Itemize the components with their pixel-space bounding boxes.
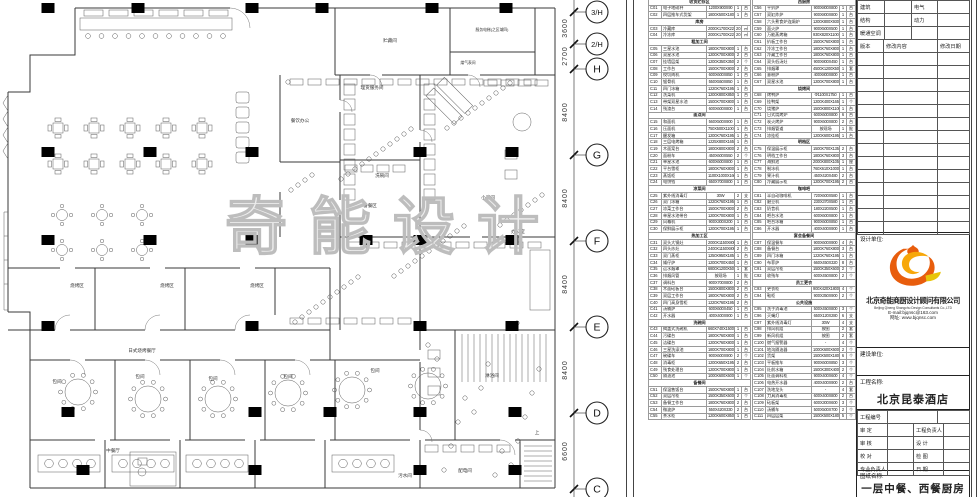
sheet-border-line bbox=[971, 0, 972, 497]
equipment-row: C64双头低汤灶900X800X4501台 bbox=[753, 59, 856, 66]
equipment-row: C42开水器400X400X9001台 bbox=[649, 313, 751, 320]
equipment-row: C03冷藏库2000X1700X220020.6㎡ bbox=[649, 25, 751, 32]
equipment-row: C27凉菜工作台1500X700X8002台 bbox=[649, 206, 751, 213]
client-section: 建设单位: bbox=[857, 348, 969, 376]
discipline-row: 暖通空调 bbox=[858, 27, 970, 40]
room-label: 小酒间 bbox=[481, 194, 495, 201]
equipment-row: C29风幕机900X300X2001台 bbox=[649, 219, 751, 226]
equipment-row: C48消毒柜1200X650X19502台 bbox=[649, 360, 751, 367]
kitchen-partitions bbox=[280, 75, 555, 488]
room-label: 贮藏间 bbox=[383, 37, 397, 44]
bbq-zone-walls bbox=[8, 268, 555, 360]
equipment-row: C51保温售饭台1500X760X8001台 bbox=[649, 386, 751, 393]
equipment-row: C99新风机组按图2套 bbox=[753, 333, 856, 340]
revision-header-row: 版本 修改内容 修改日期 bbox=[858, 40, 970, 53]
equipment-row: C107洗地龙头-4套 bbox=[753, 386, 856, 393]
sheet-title-section: 图纸名称: 一层中餐、西餐厨房 bbox=[857, 471, 969, 497]
equipment-row: C61扒板工作台1500X760X8001台 bbox=[753, 39, 856, 46]
equipment-row: 热加工区 bbox=[649, 233, 751, 240]
equipment-row: C92收残车600X450X8002个 bbox=[753, 273, 856, 280]
equipment-row: C78制冰机760X610X10001台 bbox=[753, 166, 856, 173]
revision-empty-row bbox=[858, 118, 970, 131]
room-label: 日式烧烤餐厅 bbox=[128, 347, 156, 354]
equipment-row: C80冷藏展示柜1200X700X19502台 bbox=[753, 179, 856, 186]
equipment-row: C58六头煮食炉连焗炉1200X800X9301台 bbox=[753, 19, 856, 26]
outer-walls bbox=[8, 8, 555, 488]
room-label: 包间 bbox=[370, 367, 380, 374]
equipment-row: 面点间 bbox=[649, 112, 751, 119]
equipment-row: C88备餐台1800X760X8003台 bbox=[753, 246, 856, 253]
equipment-row: C69挂鸭架1200X400X16501个 bbox=[753, 99, 856, 106]
company-logo-icon bbox=[884, 243, 942, 291]
room-labels: 贮藏间服务电梯(之区域四)煤气表间理货服务间餐饮办公洗碗间备餐区小酒间办公室烧烤… bbox=[52, 27, 539, 479]
equipment-row: C84吧台水池600X600X8001台 bbox=[753, 213, 856, 220]
equipment-row: 烧烤间 bbox=[753, 85, 856, 92]
equipment-row: C18三层电烤箱1225X800X16501台 bbox=[649, 139, 751, 146]
room-label: 淋浴间 bbox=[485, 372, 499, 379]
equipment-row: C63冷藏工作台1800X760X8001台 bbox=[753, 52, 856, 59]
sheet-title-label: 图纸名称: bbox=[857, 471, 969, 481]
equipment-row: C93更衣柜900X420X18004个 bbox=[753, 286, 856, 293]
project-no-label: 工程编号 bbox=[858, 411, 888, 424]
equipment-row: C77海鲜池2000X800X10501座 bbox=[753, 159, 856, 166]
equipment-row: 库房 bbox=[649, 19, 751, 26]
equipment-row: C102货架1500X500X18006个 bbox=[753, 353, 856, 360]
company-name-cn: 北京奇能商厨设计顾问有限公司 bbox=[857, 296, 969, 306]
equipment-row: 备餐间 bbox=[649, 380, 751, 387]
discipline-row: 建筑电气 bbox=[858, 1, 970, 14]
equipment-row: C76明档工作台1800X760X8003台 bbox=[753, 152, 856, 159]
equipment-row: C46三星洗涤池1800X700X8001台 bbox=[649, 346, 751, 353]
equipment-row: C24电饼铛650X700X8001台 bbox=[649, 179, 751, 186]
equipment-row: C91双层吊柜1500X350X6002个 bbox=[753, 266, 856, 273]
equipment-row: C26双门冰箱1220X760X19501台 bbox=[649, 199, 751, 206]
equipment-row: 咖啡吧 bbox=[753, 186, 856, 193]
project-no-value bbox=[888, 411, 938, 424]
room-label: 烧烤区 bbox=[160, 282, 174, 289]
room-label: 包间 bbox=[283, 373, 293, 380]
dimension-label: 8400 bbox=[562, 188, 569, 208]
equipment-row: C60万能蒸烤箱930X820X11001台 bbox=[753, 32, 856, 39]
equipment-row: C10锯骨机550X550X8501台 bbox=[649, 79, 751, 86]
equipment-row: C105灶面调料柜900X400X6004个 bbox=[753, 373, 856, 380]
signature-row: 校 对检 图 bbox=[858, 450, 970, 463]
equipment-row: C47碗碟车900X600X9002个 bbox=[649, 353, 751, 360]
equipment-row: C16压面机750X500X11001台 bbox=[649, 126, 751, 133]
equipment-row: C30保鲜展示柜1200X700X19501台 bbox=[649, 226, 751, 233]
project-name-label: 工程名称: bbox=[857, 376, 969, 388]
equipment-row: C09绞切肉机600X600X8501台 bbox=[649, 72, 751, 79]
equipment-row: C68烤鸭炉Φ1100X17501台 bbox=[753, 92, 856, 99]
room-label: 洗碗间 bbox=[375, 172, 389, 179]
revision-table: 版本 修改内容 修改日期 bbox=[857, 39, 970, 235]
equipment-row: C37调料台900X700X8002台 bbox=[649, 279, 751, 286]
design-unit-section: 设计单位: 北京奇能商厨设计顾问有限公司 Beijing Qineng Shan… bbox=[857, 233, 969, 348]
room-label: 办公室 bbox=[511, 228, 525, 235]
company-name-en: Beijing Qineng Shangchu Design Consultan… bbox=[860, 306, 966, 310]
equipment-row: C70烧猪炉1500X800X11001台 bbox=[753, 106, 856, 113]
room-label: 餐饮办公 bbox=[291, 117, 310, 124]
equipment-row: C71日式烧烤炉600X600X8006台 bbox=[753, 112, 856, 119]
equipment-row: C106电热开水器400X400X9002台 bbox=[753, 380, 856, 387]
discipline-revision-section: 建筑电气结构动力暖通空调 版本 修改内容 修改日期 bbox=[857, 0, 969, 233]
equipment-row: C36排烟风管按现场1批 bbox=[649, 273, 751, 280]
room-label: 包间 bbox=[52, 378, 62, 385]
revision-empty-row bbox=[858, 144, 970, 157]
discipline-table: 建筑电气结构动力暖通空调 bbox=[857, 0, 970, 40]
room-label: 烧烤区 bbox=[250, 282, 264, 289]
equipment-row: C38木面砧板台1500X800X8002台 bbox=[649, 286, 751, 293]
rev-col-version: 版本 bbox=[858, 40, 884, 53]
equipment-row: C35运水烟罩6800X1200X5001套 bbox=[649, 266, 751, 273]
equipment-row: C100燃气报警器-4个 bbox=[753, 340, 856, 347]
equipment-row: C111四层层架1500X500X18005个 bbox=[753, 413, 856, 420]
equipment-schedule-1: 收货贮存区C01电子地磅秤1200X900X901台C02四层推车式货架1800… bbox=[648, 0, 751, 420]
equipment-row: C54微波炉550X420X3302台 bbox=[649, 406, 751, 413]
equipment-row: C32四头炒灶2400X1150X8002台 bbox=[649, 246, 751, 253]
equipment-row: 公共设施 bbox=[753, 299, 856, 306]
equipment-row: C21单星水池600X600X8001台 bbox=[649, 159, 751, 166]
project-name: 北京昆泰酒店 bbox=[857, 391, 969, 407]
equipment-row: C110汤桶车500X500X7002个 bbox=[753, 406, 856, 413]
equipment-schedule-2: 西厨房C56平扒炉900X800X8001台C57双缸炸炉900X800X800… bbox=[752, 0, 856, 420]
equipment-row: C41汤桶炉600X600X4501台 bbox=[649, 306, 751, 313]
equipment-row: C89四门冰箱1220X760X19501台 bbox=[753, 253, 856, 260]
equipment-row: C15和面机560X500X9001台 bbox=[649, 119, 751, 126]
grid-bubble-label: C bbox=[593, 484, 601, 496]
signature-table: 审 定工程负责人审 核设 计校 对检 图专业负责人日 期 bbox=[857, 423, 970, 476]
equipment-row: C40四门高身雪柜1220X760X19502台 bbox=[649, 299, 751, 306]
equipment-row: C81半自动咖啡机720X600X5801台 bbox=[753, 192, 856, 199]
equipment-row: C44污碟台1800X760X8001台 bbox=[649, 333, 751, 340]
equipment-row: C56平扒炉900X800X8001台 bbox=[753, 5, 856, 12]
equipment-row: C83奶昔机180X220X5001台 bbox=[753, 206, 856, 213]
equipment-row: C55茶水柜1200X600X8501台 bbox=[649, 413, 751, 420]
equipment-row: C82磨豆机230X370X5801台 bbox=[753, 199, 856, 206]
equipment-row: C101地沟隔油器1000X600X6002个 bbox=[753, 346, 856, 353]
revision-empty-row bbox=[858, 209, 970, 222]
equipment-row: C75保温展示柜1500X700X13502台 bbox=[753, 146, 856, 153]
sheet-border-line-2 bbox=[976, 0, 977, 497]
room-label: 煤气表间 bbox=[460, 60, 475, 65]
dimension-label: 6600 bbox=[562, 441, 569, 461]
room-partitions-top bbox=[335, 8, 555, 75]
equipment-row: C11四门冰箱1220X760X19501台 bbox=[649, 85, 751, 92]
title-block: 建筑电气结构动力暖通空调 版本 修改内容 修改日期 设计单位: bbox=[856, 0, 970, 497]
room-label: 包间 bbox=[135, 373, 145, 380]
grid-axis-column: 3/H2/HHGFEDC3600270084008400840084006600 bbox=[560, 0, 648, 497]
equipment-row: C43揭盖式洗碗机660X740X15001台 bbox=[649, 326, 751, 333]
equipment-row: C12洗菜机1200X800X8501台 bbox=[649, 92, 751, 99]
dimension-label: 8400 bbox=[562, 102, 569, 122]
equipment-row: C95洗手消毒池500X450X8003个 bbox=[753, 306, 856, 313]
equipment-row: C01电子地磅秤1200X900X901台 bbox=[649, 5, 751, 12]
rev-col-date: 修改日期 bbox=[938, 40, 970, 53]
equipment-row: C67双星水池1200X700X8001台 bbox=[753, 79, 856, 86]
equipment-row: C02四层推车式货架1800X500X18001台 bbox=[649, 12, 751, 19]
equipment-row: C104灶前水箱1500X300X4002个 bbox=[753, 366, 856, 373]
equipment-row: C33双门蒸柜1250X950X18501台 bbox=[649, 253, 751, 260]
equipment-row: C85吧台冰箱900X600X8501台 bbox=[753, 219, 856, 226]
project-name-section: 工程名称: 北京昆泰酒店 bbox=[857, 376, 969, 410]
equipment-row: C49残食处理台1200X700X8001台 bbox=[649, 366, 751, 373]
equipment-row: C86开水器400X400X9001台 bbox=[753, 226, 856, 233]
revision-empty-row bbox=[858, 79, 970, 92]
revision-empty-row bbox=[858, 105, 970, 118]
equipment-row: C06双星水池1200X700X8002台 bbox=[649, 52, 751, 59]
equipment-row: C87保温餐车900X600X9004台 bbox=[753, 239, 856, 246]
revision-empty-row bbox=[858, 170, 970, 183]
room-label: 上 bbox=[535, 429, 540, 435]
client-label: 建设单位: bbox=[857, 348, 969, 360]
equipment-row: C19木面案台1800X800X8002台 bbox=[649, 146, 751, 153]
equipment-row: C90布菲炉660X450X3208台 bbox=[753, 259, 856, 266]
equipment-row: 凉菜间 bbox=[649, 186, 751, 193]
equipment-row: 明档区 bbox=[753, 139, 856, 146]
equipment-row: C05三星水池1800X700X8001台 bbox=[649, 45, 751, 52]
revision-empty-row bbox=[858, 66, 970, 79]
room-label: 污水间 bbox=[398, 472, 412, 479]
inner-border-line bbox=[626, 0, 627, 497]
private-room-walls bbox=[30, 330, 555, 488]
equipment-row: C66意粉炉400X800X8001台 bbox=[753, 72, 856, 79]
equipment-row: C08工作台1500X700X8002台 bbox=[649, 65, 751, 72]
room-label: 中餐厅 bbox=[106, 447, 120, 454]
floor-plan: 贮藏间服务电梯(之区域四)煤气表间理货服务间餐饮办公洗碗间备餐区小酒间办公室烧烤… bbox=[0, 0, 560, 497]
signature-row: 审 核设 计 bbox=[858, 437, 970, 450]
equipment-row: C62冷冻工作台1800X760X8001台 bbox=[753, 45, 856, 52]
grid-bubble-label: 3/H bbox=[591, 8, 603, 17]
equipment-row: C103平板推车900X600X8503个 bbox=[753, 360, 856, 367]
equipment-row: C50隔油池1000X600X6001个 bbox=[649, 373, 751, 380]
dimension-label: 8400 bbox=[562, 274, 569, 294]
bay-windows bbox=[3, 95, 8, 310]
discipline-row: 结构动力 bbox=[858, 14, 970, 27]
grid-bubble-label: F bbox=[594, 236, 600, 248]
equipment-row: C31双头大锅灶2000X1150X8001台 bbox=[649, 239, 751, 246]
equipment-row: C96灭蝇灯650X120X2806支 bbox=[753, 313, 856, 320]
room-label: 配电间 bbox=[458, 467, 472, 474]
grid-bubble-label: 2/H bbox=[591, 40, 603, 49]
equipment-row: C25紫外线消毒灯30W2支 bbox=[649, 192, 751, 199]
equipment-row: C39双层工作台1800X760X8002台 bbox=[649, 293, 751, 300]
equipment-row: C53备餐工作台1800X760X8002台 bbox=[649, 400, 751, 407]
project-no-table: 工程编号 bbox=[857, 410, 970, 424]
equipment-row: C14残渣台600X600X8001台 bbox=[649, 106, 751, 113]
room-label: 烧烤区 bbox=[70, 282, 84, 289]
project-no-and-signatures: 工程编号 审 定工程负责人审 核设 计校 对检 图专业负责人日 期 bbox=[857, 410, 969, 471]
equipment-row: 洗碗间 bbox=[649, 320, 751, 327]
rev-col-content: 修改内容 bbox=[884, 40, 938, 53]
equipment-row: C74凉挂柜1200X600X19501台 bbox=[753, 132, 856, 139]
revision-empty-row bbox=[858, 92, 970, 105]
dimension-label: 3600 bbox=[562, 18, 569, 38]
equipment-row: 宴会备餐间 bbox=[753, 233, 856, 240]
sheet-title: 一层中餐、西餐厨房 bbox=[857, 481, 969, 496]
equipment-row: C13带架双星水池1500X700X8001台 bbox=[649, 99, 751, 106]
equipment-row: C07挂墙层架1200X350X3502个 bbox=[649, 59, 751, 66]
room-label: 备餐区 bbox=[363, 202, 377, 209]
equipment-row: C57双缸炸炉900X800X8001台 bbox=[753, 12, 856, 19]
equipment-row: C23蒸饭柜1100X1000X16001台 bbox=[649, 172, 751, 179]
grid-bubble-label: G bbox=[593, 150, 601, 162]
equipment-row: C17醒发箱1200X760X19501台 bbox=[649, 132, 751, 139]
dimension-label: 2700 bbox=[562, 46, 569, 66]
equipment-row: C52双层吊柜1500X350X6002个 bbox=[649, 393, 751, 400]
equipment-row: C22平台雪柜1800X760X8001台 bbox=[649, 166, 751, 173]
grid-bubble-label: H bbox=[593, 64, 601, 76]
equipment-row: C73排烟管道按现场1批 bbox=[753, 126, 856, 133]
equipment-row: 员工更衣 bbox=[753, 279, 856, 286]
grid-bubble-label: D bbox=[593, 408, 601, 420]
equipment-row: C04冷冻库2000X1700X220020.6㎡ bbox=[649, 32, 751, 39]
equipment-row: C72炭火烤炉900X600X8002台 bbox=[753, 119, 856, 126]
company-website: 网址: www.bjqnsc.com bbox=[857, 315, 969, 321]
equipment-row: C108刀具消毒柜600X400X8002台 bbox=[753, 393, 856, 400]
equipment-row: C28单星水池带台1200X700X8001台 bbox=[649, 213, 751, 220]
revision-empty-row bbox=[858, 131, 970, 144]
dimension-label: 8400 bbox=[562, 360, 569, 380]
inner-border-line-2 bbox=[633, 0, 634, 497]
room-label: 理货服务间 bbox=[361, 84, 384, 91]
equipment-row: C65排烟罩4500X1200X5001套 bbox=[753, 65, 856, 72]
drawing-sheet: 贮藏间服务电梯(之区域四)煤气表间理货服务间餐饮办公洗碗间备餐区小酒间办公室烧烤… bbox=[0, 0, 979, 497]
equipment-row: C59面火炉900X500X5001台 bbox=[753, 25, 856, 32]
equipment-row: C34矮仔炉1200X700X4501台 bbox=[649, 259, 751, 266]
room-label: 包间 bbox=[208, 375, 218, 382]
equipment-row: C98排风机组按图2套 bbox=[753, 326, 856, 333]
revision-empty-row bbox=[858, 183, 970, 196]
revision-empty-row bbox=[858, 157, 970, 170]
equipment-row: C79果汁机450X420X4802台 bbox=[753, 172, 856, 179]
equipment-row: 粗加工间 bbox=[649, 39, 751, 46]
revision-empty-row bbox=[858, 53, 970, 66]
grid-bubble-label: E bbox=[593, 322, 600, 334]
equipment-row: C97紫外线消毒灯30W4支 bbox=[753, 320, 856, 327]
signature-row: 审 定工程负责人 bbox=[858, 424, 970, 437]
equipment-row: C45洁碟台1200X760X8001台 bbox=[649, 340, 751, 347]
revision-empty-row bbox=[858, 196, 970, 209]
equipment-row: C94鞋柜900X350X9002个 bbox=[753, 293, 856, 300]
room-label: 服务电梯(之区域四) bbox=[476, 27, 510, 32]
equipment-row: C109砧板架600X300X6003个 bbox=[753, 400, 856, 407]
equipment-row: C20面粉车450X600X5502个 bbox=[649, 152, 751, 159]
